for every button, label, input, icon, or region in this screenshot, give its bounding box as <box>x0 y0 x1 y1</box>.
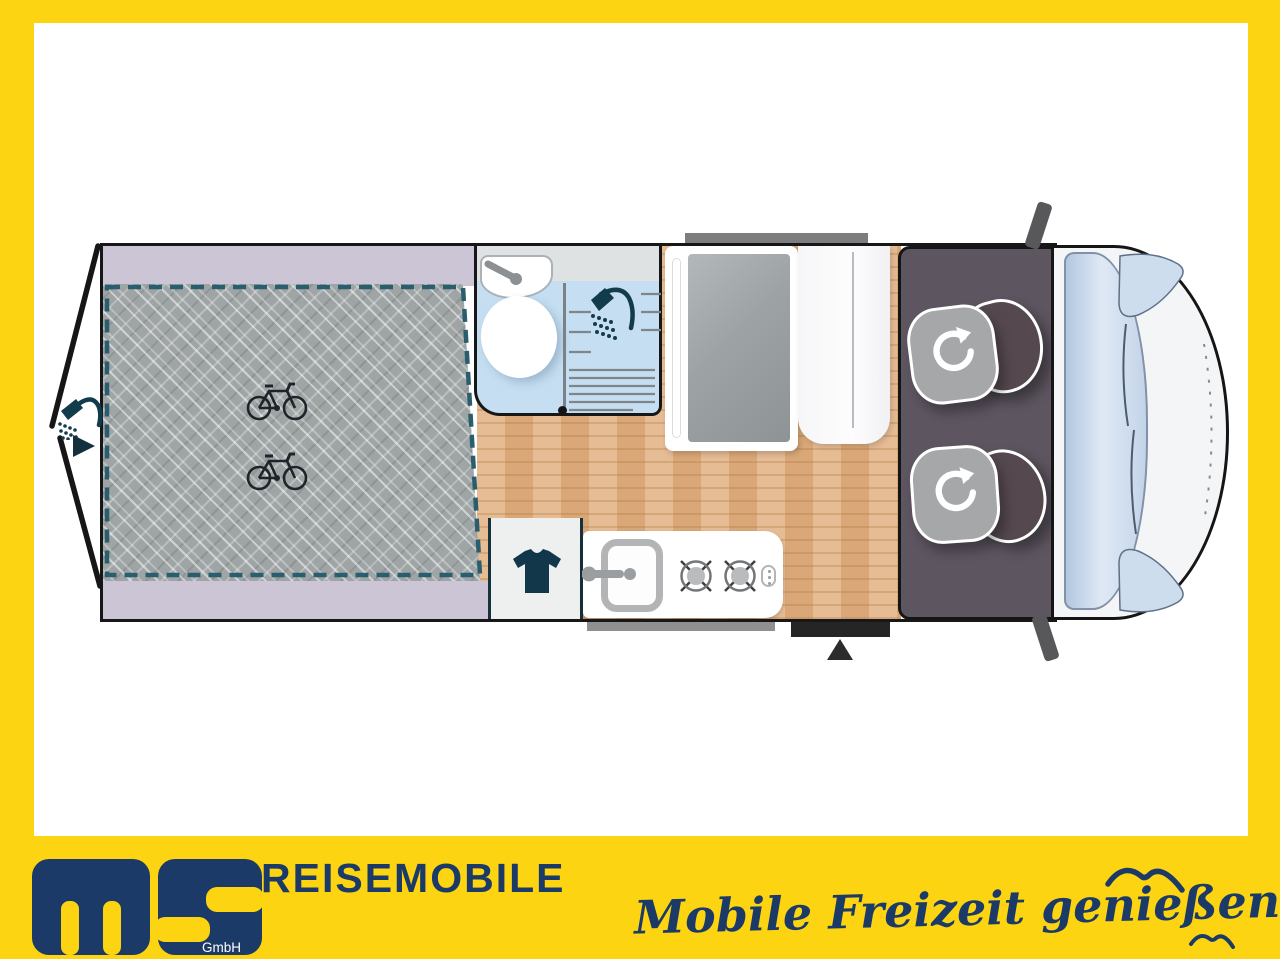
swivel-seat <box>903 301 1002 408</box>
entry-step <box>791 622 890 637</box>
shower-head-icon <box>587 282 639 346</box>
bicycle-icon <box>246 376 308 421</box>
outdoor-shower-icon <box>56 394 106 440</box>
bathroom <box>474 246 662 416</box>
brand-text: REISEMOBILE <box>261 855 565 902</box>
swivel-seat <box>908 443 1003 546</box>
wardrobe-tshirt-icon <box>511 547 563 595</box>
swivel-seat-rotate-icon <box>926 461 984 519</box>
swivel-seat-rotate-icon <box>922 320 982 380</box>
logo-company-suffix: GmbH <box>202 940 241 955</box>
roof-rail <box>685 233 868 246</box>
ms-logo: GmbH <box>30 857 264 957</box>
wardrobe <box>488 518 583 619</box>
bed-unit <box>665 246 798 451</box>
garage-side-band-bottom <box>103 581 488 619</box>
burner-knobs <box>761 565 776 587</box>
gas-burner-icon <box>718 554 762 598</box>
bicycle-icon <box>246 446 308 491</box>
washbasin-faucet-icon <box>483 258 527 288</box>
gas-burner-icon <box>674 554 718 598</box>
driver-cab <box>898 246 1055 620</box>
side-cabinet <box>798 246 890 444</box>
advert-banner: GmbH REISEMOBILE Mobile Freizeit genieße… <box>0 0 1280 959</box>
front-details <box>1050 244 1230 622</box>
entry-arrow-icon <box>73 435 95 457</box>
kitchen-block <box>583 531 783 618</box>
garage-dashed-outline <box>100 280 490 582</box>
seagull-icon <box>1105 858 1185 898</box>
sink-faucet-icon <box>582 564 638 584</box>
bed-side-rail <box>672 258 681 438</box>
toilet-icon <box>476 291 563 383</box>
cabinet-seam <box>852 252 854 428</box>
door-triangle-icon <box>827 639 853 660</box>
bed-panel <box>686 252 792 444</box>
seagull-icon <box>1188 928 1236 954</box>
entry-rail <box>587 622 775 631</box>
